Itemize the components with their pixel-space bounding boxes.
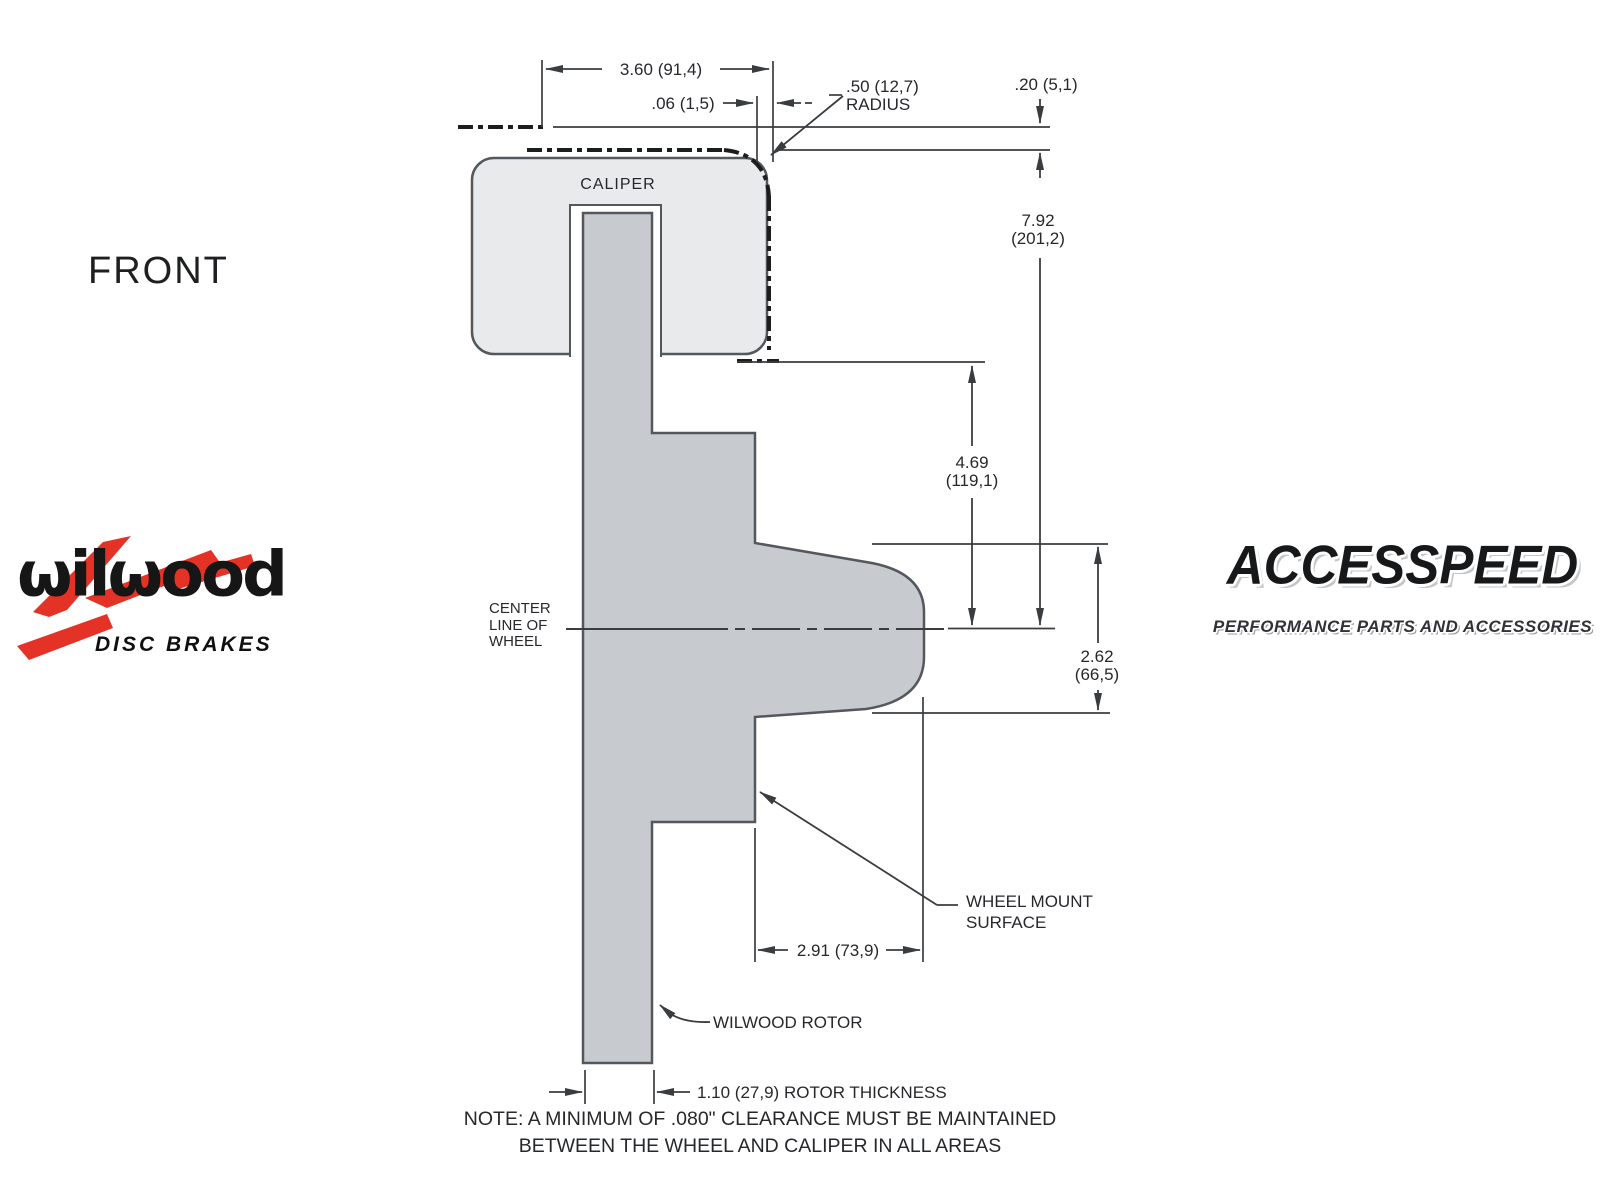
dim-wheel-lip: .20 (5,1): [1014, 75, 1077, 95]
accesspeed-logo: ACCESSPEED PERFORMANCE PARTS AND ACCESSO…: [1205, 533, 1600, 648]
brake-dimension-diagram: FRONT CALIPER 3.60 (91,4) .06 (1,5) .50 …: [0, 0, 1600, 1200]
rotor-label: WILWOOD ROTOR: [713, 1013, 863, 1033]
dim-469-mm: (119,1): [946, 472, 999, 490]
center-line-label: CENTER LINE OF WHEEL: [489, 601, 551, 651]
dim-wheel-inner-to-center: 7.92 (201,2): [1007, 211, 1069, 249]
accesspeed-tagline: PERFORMANCE PARTS AND ACCESSORIES: [1205, 617, 1600, 637]
dim-792-in: 7.92: [1011, 212, 1065, 230]
dim-469-in: 4.69: [946, 454, 999, 472]
dim-caliper-width: 3.60 (91,4): [615, 60, 707, 80]
wheel-mount-label-2: SURFACE: [966, 912, 1093, 933]
clearance-note-line1: NOTE: A MINIMUM OF .080" CLEARANCE MUST …: [464, 1106, 1056, 1133]
dim-mount-face-offset: 2.91 (73,9): [792, 941, 884, 961]
dim-262-mm: (66,5): [1075, 666, 1119, 684]
wilwood-logo: ωilωood DISC BRAKES: [15, 520, 320, 665]
accesspeed-wordmark: ACCESSPEED: [1205, 533, 1600, 597]
dim-262-in: 2.62: [1075, 648, 1119, 666]
wilwood-wordmark: ωilωood: [17, 539, 285, 612]
wheel-mount-leader: [760, 792, 937, 905]
clearance-note: NOTE: A MINIMUM OF .080" CLEARANCE MUST …: [464, 1106, 1056, 1160]
dim-hat-depth: 2.62 (66,5): [1071, 647, 1123, 685]
rotor-leader: [660, 1005, 710, 1022]
wilwood-tagline: DISC BRAKES: [95, 633, 273, 657]
center-line-label-1: CENTER: [489, 601, 551, 618]
caliper-label: CALIPER: [580, 176, 655, 194]
view-label: FRONT: [88, 250, 229, 293]
wheel-mount-label-1: WHEEL MOUNT: [966, 891, 1093, 912]
dim-caliper-wheel-gap: .06 (1,5): [646, 94, 719, 114]
radius-suffix: RADIUS: [846, 96, 919, 114]
leader-lines: [660, 792, 958, 1022]
dim-lip-to-center: 4.69 (119,1): [942, 453, 1003, 491]
wheel-mount-surface-label: WHEEL MOUNT SURFACE: [966, 891, 1093, 933]
dim-rotor-thickness: 1.10 (27,9) ROTOR THICKNESS: [697, 1083, 947, 1103]
clearance-note-line2: BETWEEN THE WHEEL AND CALIPER IN ALL ARE…: [464, 1133, 1056, 1160]
dim-792-mm: (201,2): [1011, 230, 1065, 248]
center-line-label-2: LINE OF: [489, 618, 551, 635]
center-line-label-3: WHEEL: [489, 634, 551, 651]
radius-value: .50 (12,7): [846, 78, 919, 96]
dim-corner-radius: .50 (12,7) RADIUS: [846, 78, 919, 113]
